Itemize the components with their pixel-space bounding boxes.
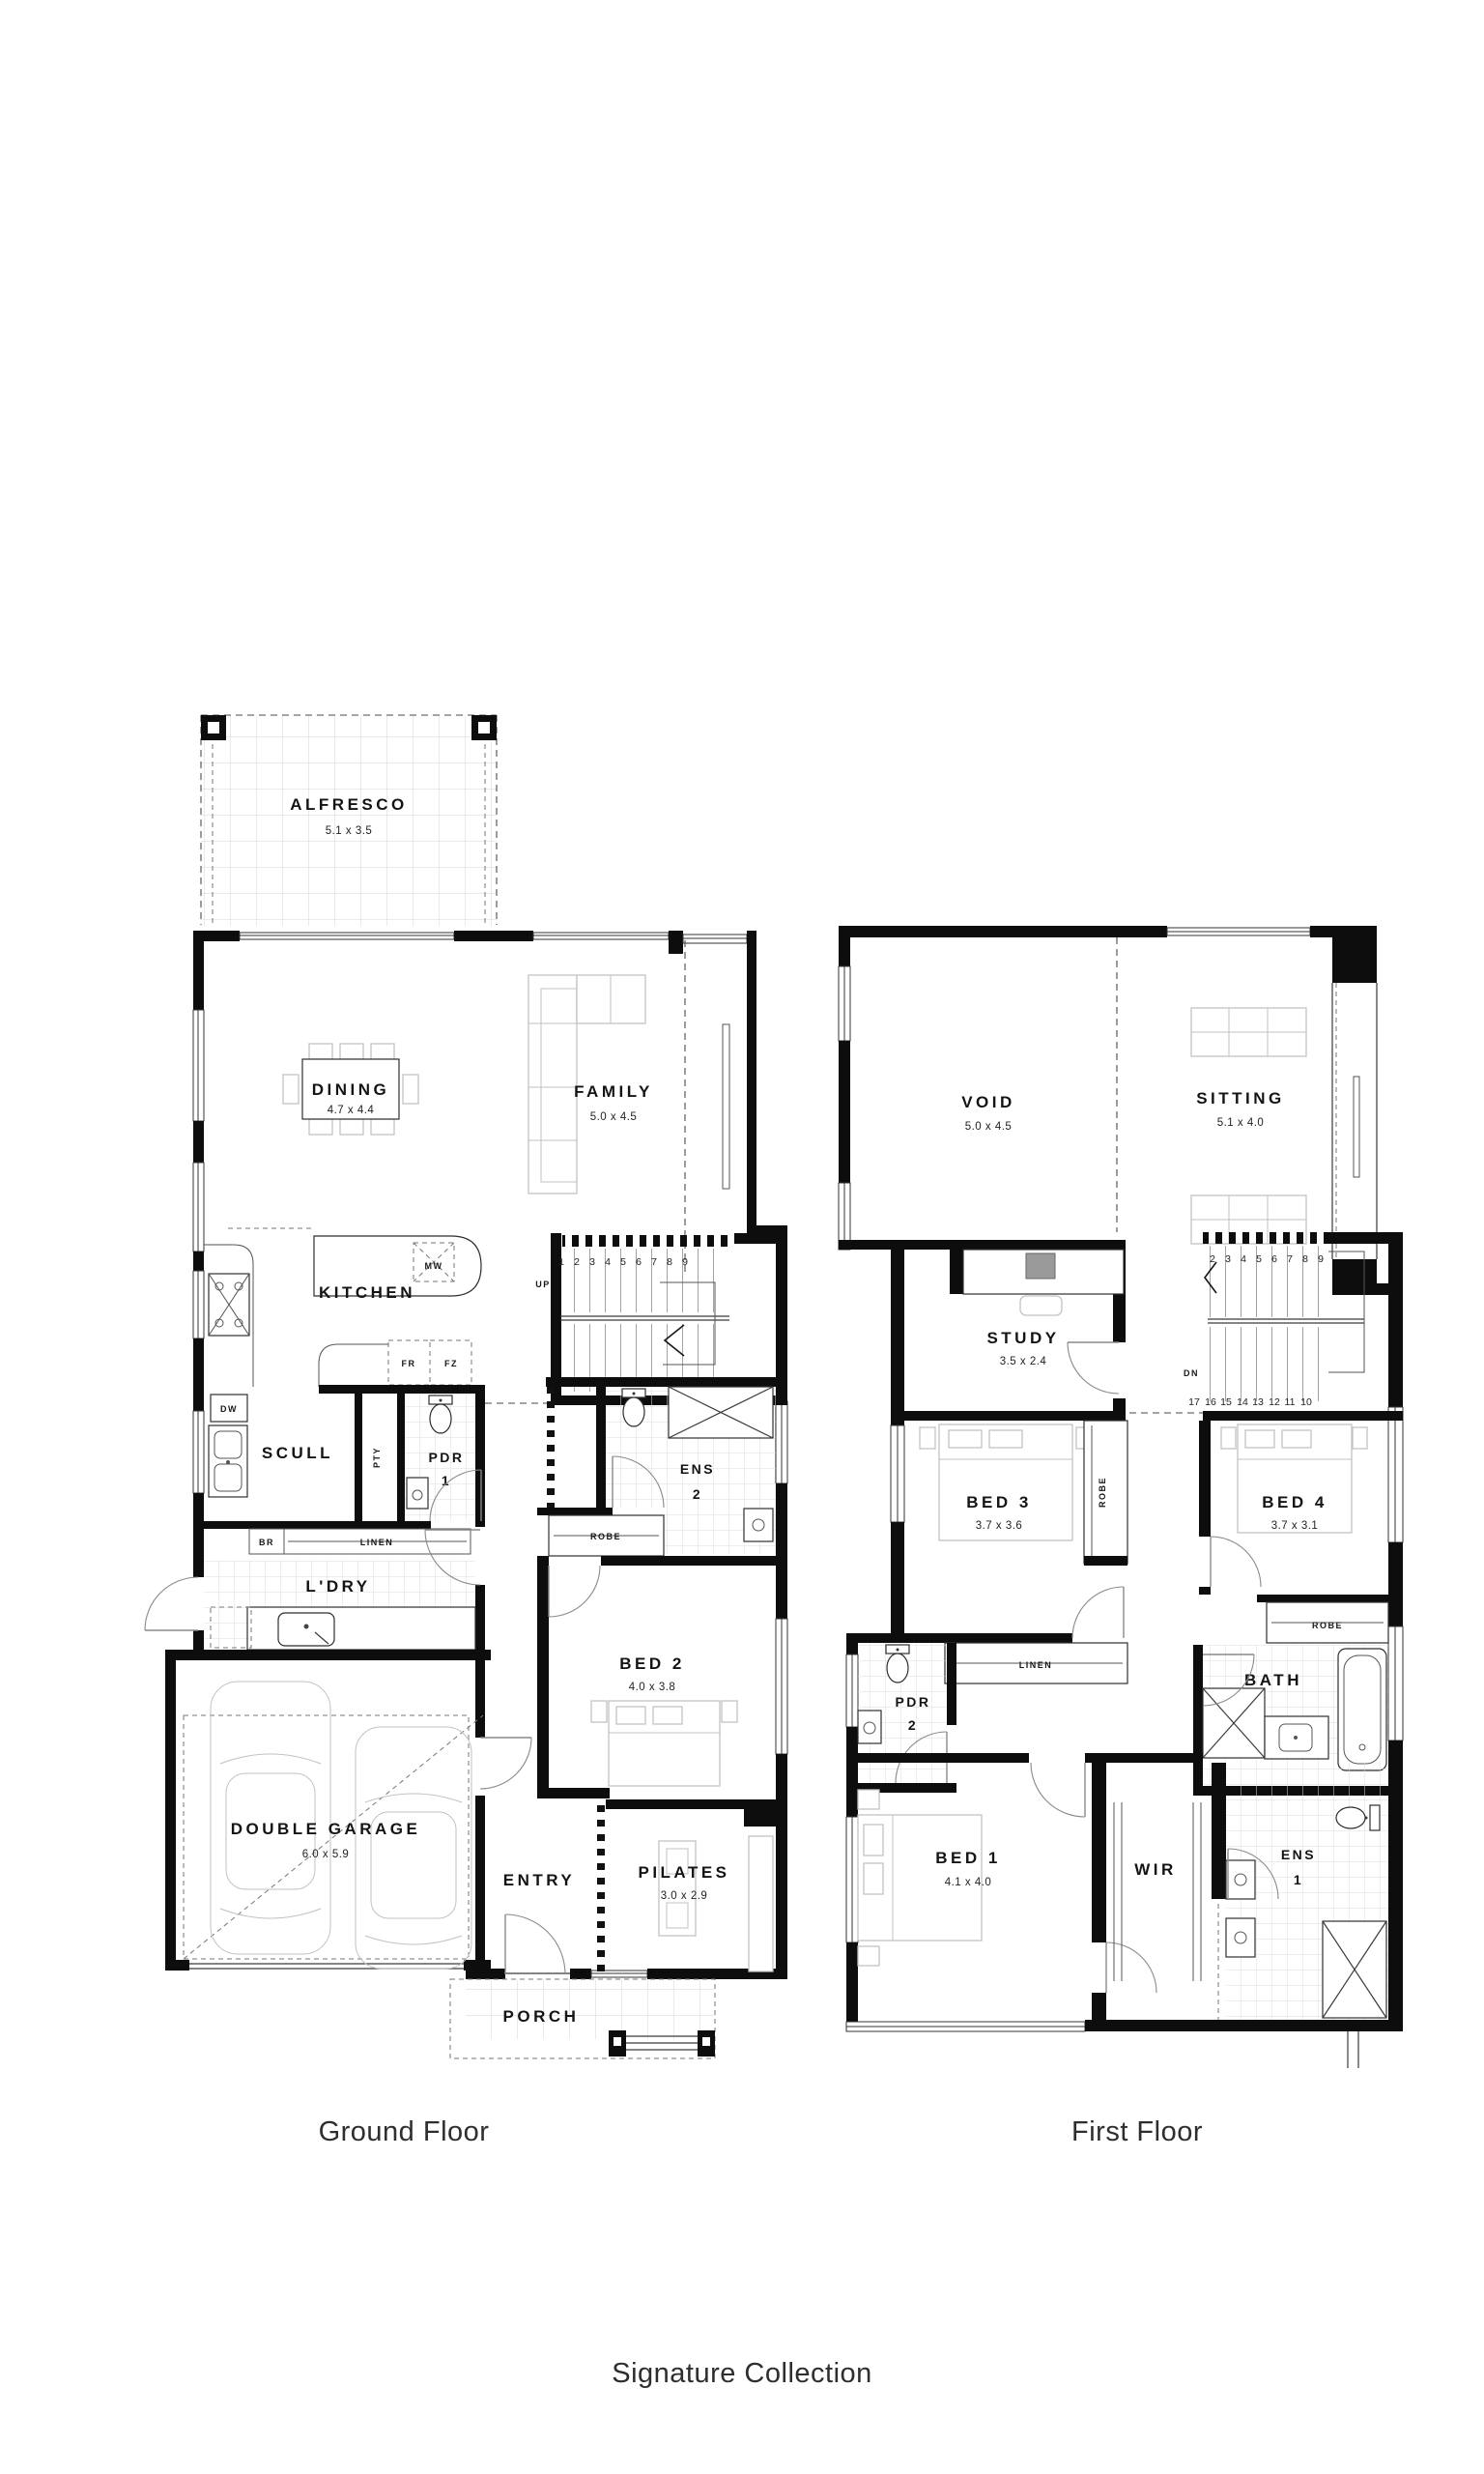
room-void: VOID 5.0 x 4.5 — [961, 937, 1117, 1232]
room-pdr1: PDR 1 — [405, 1385, 485, 1527]
linen-label: LINEN — [360, 1538, 394, 1547]
desk-icon — [963, 1250, 1124, 1315]
dining-dim: 4.7 x 4.4 — [328, 1105, 375, 1116]
collection-caption: Signature Collection — [612, 2358, 872, 2390]
ens1-num: 1 — [1294, 1872, 1303, 1887]
ground-floor-caption: Ground Floor — [319, 2116, 490, 2148]
alfresco-label: ALFRESCO — [290, 795, 408, 814]
garage-label: DOUBLE GARAGE — [231, 1820, 421, 1838]
svg-text:9: 9 — [1318, 1253, 1324, 1265]
bed1-label: BED 1 — [935, 1849, 1001, 1867]
svg-text:8: 8 — [667, 1256, 672, 1268]
car-icon — [211, 1682, 330, 1954]
room-bed2: BED 2 4.0 x 3.8 — [537, 1556, 776, 1798]
sitting-dim: 5.1 x 4.0 — [1217, 1117, 1265, 1129]
first-floor-caption: First Floor — [1071, 2116, 1203, 2148]
svg-text:MW: MW — [425, 1261, 443, 1271]
room-pilates: PILATES 3.0 x 2.9 — [606, 1799, 787, 1971]
car-icon — [356, 1727, 471, 1969]
shower-icon — [1203, 1688, 1265, 1758]
shower-icon — [1323, 1921, 1386, 2018]
bed4-dim: 3.7 x 3.1 — [1271, 1520, 1319, 1532]
room-sitting: SITTING 5.1 x 4.0 — [1191, 1008, 1306, 1244]
svg-text:17: 17 — [1188, 1396, 1200, 1408]
ground-floor-plan: ALFRESCO 5.1 x 3.5 — [126, 710, 802, 2063]
first-floor-plan: VOID 5.0 x 4.5 SITTING 5.1 x 4.0 — [823, 918, 1413, 2068]
svg-text:9: 9 — [682, 1256, 688, 1268]
robe-label: ROBE — [590, 1532, 621, 1541]
svg-text:DW: DW — [220, 1404, 238, 1414]
broom-label: BR — [259, 1538, 274, 1547]
svg-text:15: 15 — [1220, 1396, 1232, 1408]
pdr2-label: PDR — [895, 1694, 930, 1710]
svg-text:8: 8 — [1302, 1253, 1308, 1265]
wardrobe-rails-icon — [1114, 1802, 1201, 1981]
room-pdr2: PDR 2 — [846, 1643, 956, 1793]
void-label: VOID — [961, 1093, 1015, 1111]
robe-bed4: ROBE — [1257, 1595, 1388, 1643]
toilet-icon — [622, 1389, 645, 1426]
svg-text:14: 14 — [1237, 1396, 1248, 1408]
pdr1-label: PDR — [428, 1450, 464, 1465]
bed2-dim: 4.0 x 3.8 — [629, 1682, 676, 1693]
porch-label: PORCH — [503, 2007, 580, 2026]
svg-text:5: 5 — [620, 1256, 626, 1268]
svg-text:FR: FR — [402, 1359, 416, 1368]
bed3-dim: 3.7 x 3.6 — [976, 1520, 1023, 1532]
family-label: FAMILY — [574, 1082, 653, 1101]
entry-label: ENTRY — [503, 1871, 576, 1889]
pdr2-num: 2 — [908, 1717, 918, 1733]
basin-icon — [744, 1509, 773, 1541]
sofa-icon — [1191, 1008, 1306, 1056]
svg-text:3: 3 — [1225, 1253, 1231, 1265]
bed1-dim: 4.1 x 4.0 — [945, 1877, 992, 1888]
pilates-label: PILATES — [638, 1863, 729, 1882]
scull-label: SCULL — [262, 1444, 333, 1462]
svg-text:13: 13 — [1252, 1396, 1264, 1408]
room-entry: ENTRY — [503, 1805, 601, 1974]
up-label: UP — [535, 1280, 551, 1289]
dn-label: DN — [1184, 1368, 1199, 1378]
svg-text:4: 4 — [605, 1256, 611, 1268]
study-label: STUDY — [986, 1329, 1059, 1347]
fridge-freezer-icon: FR FZ — [388, 1340, 471, 1385]
svg-text:7: 7 — [651, 1256, 657, 1268]
ens2-label: ENS — [680, 1461, 715, 1477]
dishwasher-icon: DW — [211, 1395, 247, 1422]
pilates-dim: 3.0 x 2.9 — [661, 1890, 708, 1902]
svg-text:10: 10 — [1300, 1396, 1312, 1408]
svg-text:12: 12 — [1269, 1396, 1280, 1408]
room-porch: PORCH — [450, 1979, 715, 2058]
sink-icon — [209, 1425, 247, 1497]
room-bed4: BED 4 3.7 x 3.1 ROBE — [1199, 1421, 1388, 1643]
room-dining: DINING 4.7 x 4.4 — [283, 1044, 418, 1135]
alfresco-dim: 5.1 x 3.5 — [326, 825, 373, 837]
ens1-label: ENS — [1281, 1847, 1316, 1862]
void-dim: 5.0 x 4.5 — [965, 1121, 1013, 1133]
bath-label: BATH — [1244, 1671, 1302, 1689]
bathtub-icon — [1338, 1649, 1386, 1770]
svg-text:2: 2 — [574, 1256, 580, 1268]
room-study: STUDY 3.5 x 2.4 — [891, 1240, 1126, 1421]
robe-ground: ROBE — [549, 1515, 664, 1556]
room-family: FAMILY 5.0 x 4.5 — [528, 940, 729, 1273]
svg-text:FZ: FZ — [444, 1359, 458, 1368]
svg-text:5: 5 — [1256, 1253, 1262, 1265]
laundry-sink-icon — [278, 1613, 334, 1646]
toilet-icon — [886, 1645, 909, 1683]
room-alfresco: ALFRESCO 5.1 x 3.5 — [201, 715, 497, 926]
robe-label: ROBE — [1098, 1477, 1107, 1508]
tv-icon — [1354, 1077, 1359, 1177]
hall-linen-first: LINEN — [945, 1643, 1127, 1683]
svg-text:16: 16 — [1205, 1396, 1216, 1408]
vanity-icon — [1265, 1716, 1328, 1759]
svg-text:6: 6 — [1271, 1253, 1277, 1265]
ens2-num: 2 — [693, 1486, 702, 1502]
kitchen-label: KITCHEN — [319, 1283, 415, 1302]
bed2-label: BED 2 — [619, 1654, 685, 1673]
room-bed3: BED 3 3.7 x 3.6 ROBE — [846, 1421, 1127, 1643]
study-dim: 3.5 x 2.4 — [1000, 1356, 1047, 1367]
room-garage: DOUBLE GARAGE 6.0 x 5.9 — [165, 1650, 531, 1971]
tv-icon — [723, 1024, 729, 1189]
basin-icon — [407, 1478, 428, 1509]
floorplan-page: ALFRESCO 5.1 x 3.5 — [0, 0, 1484, 2474]
basin-icon — [858, 1711, 881, 1743]
family-dim: 5.0 x 4.5 — [590, 1111, 638, 1123]
pantry-label: PTY — [372, 1447, 382, 1468]
wir-label: WIR — [1134, 1860, 1177, 1879]
linen-label: LINEN — [1019, 1660, 1053, 1670]
garage-dim: 6.0 x 5.9 — [302, 1849, 350, 1860]
bed4-label: BED 4 — [1262, 1493, 1327, 1511]
svg-text:7: 7 — [1287, 1253, 1293, 1265]
stair-numbers-ground: 1 2 3 4 5 6 7 8 9 — [558, 1256, 688, 1268]
robe-bed3: ROBE — [1084, 1421, 1127, 1566]
bed-icon — [591, 1701, 737, 1786]
shower-icon — [669, 1387, 773, 1438]
room-wir: WIR — [1092, 1763, 1201, 2020]
robe-label: ROBE — [1312, 1621, 1343, 1630]
svg-text:2: 2 — [1210, 1253, 1215, 1265]
svg-text:4: 4 — [1241, 1253, 1246, 1265]
toilet-icon — [1336, 1805, 1380, 1830]
dining-label: DINING — [312, 1080, 390, 1099]
svg-text:3: 3 — [589, 1256, 595, 1268]
pilates-equipment-icon — [659, 1836, 773, 1971]
ldry-label: L'DRY — [305, 1577, 370, 1596]
room-kitchen: MW FR FZ KITCHEN — [204, 1228, 481, 1387]
svg-text:1: 1 — [558, 1256, 564, 1268]
svg-text:6: 6 — [636, 1256, 642, 1268]
svg-text:11: 11 — [1285, 1396, 1296, 1408]
bed-icon — [1221, 1424, 1367, 1533]
bed3-label: BED 3 — [966, 1493, 1032, 1511]
cooktop-icon — [209, 1274, 249, 1336]
roof-below-outline — [1252, 2031, 1359, 2068]
sitting-label: SITTING — [1196, 1089, 1285, 1108]
room-ens1: ENS 1 — [1212, 1763, 1388, 2020]
toilet-icon — [429, 1395, 452, 1433]
